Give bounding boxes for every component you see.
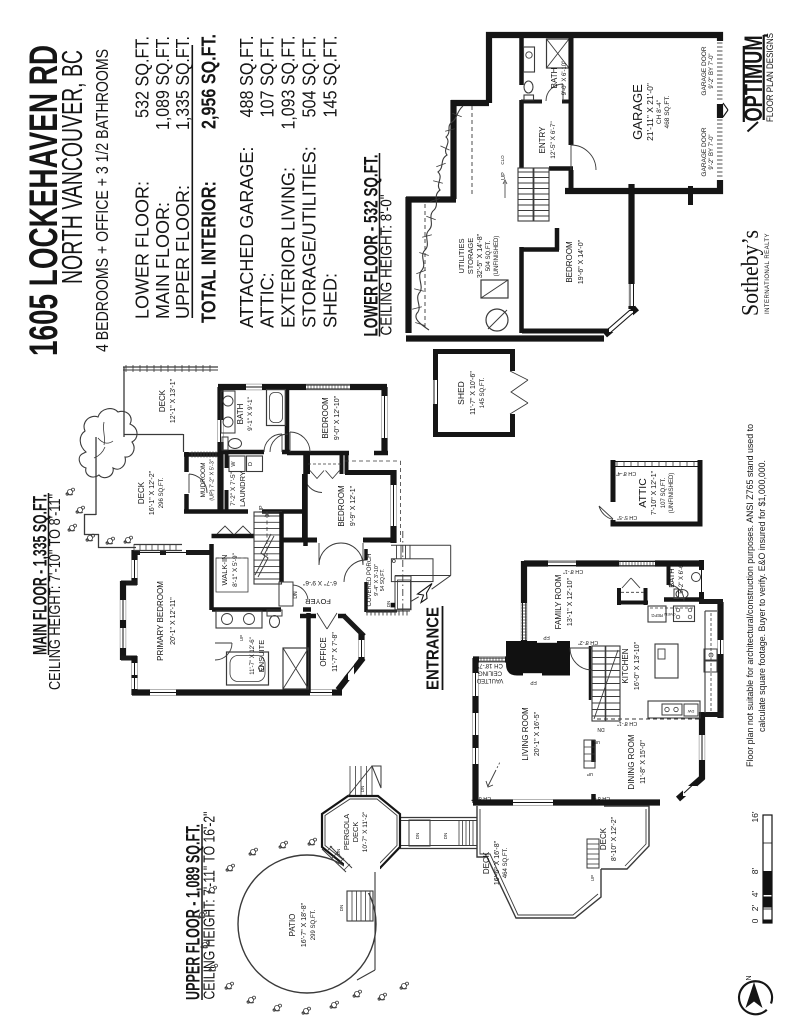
svg-text:EXTERIOR LIVING:: EXTERIOR LIVING: [279, 167, 299, 328]
svg-text:LIVING ROOM: LIVING ROOM [521, 707, 530, 761]
svg-text:D: D [248, 462, 254, 466]
svg-text:GARAGE DOOR: GARAGE DOOR [701, 46, 708, 95]
svg-text:32'-5" X 14'-8": 32'-5" X 14'-8" [477, 233, 484, 278]
svg-text:1,089 SQ.FT.: 1,089 SQ.FT. [153, 36, 173, 130]
svg-text:8'-1" X 5'-9": 8'-1" X 5'-9" [232, 552, 239, 587]
svg-text:9'-2" BY 7'-0": 9'-2" BY 7'-0" [709, 53, 715, 88]
svg-text:MUDROOM: MUDROOM [200, 462, 207, 497]
svg-text:488 SQ.FT.: 488 SQ.FT. [237, 36, 257, 118]
svg-text:SHED:: SHED: [321, 273, 341, 328]
svg-text:BEDROOM: BEDROOM [321, 397, 330, 439]
svg-text:(UNFINISHED): (UNFINISHED) [669, 473, 675, 514]
svg-text:CH 8'-1": CH 8'-1" [590, 795, 610, 801]
svg-text:54 SQ.FT.: 54 SQ.FT. [380, 569, 386, 592]
svg-text:STORAGE: STORAGE [466, 238, 475, 275]
svg-text:FAMILY ROOM: FAMILY ROOM [554, 574, 563, 629]
svg-text:VAULTED: VAULTED [476, 677, 503, 683]
svg-text:OVEN: OVEN [664, 612, 675, 617]
svg-text:11'-7" X 12'-6": 11'-7" X 12'-6" [250, 637, 256, 674]
svg-text:ENSUITE: ENSUITE [257, 640, 266, 673]
svg-text:DECK: DECK [482, 851, 491, 874]
svg-text:DECK: DECK [158, 389, 167, 412]
svg-text:UP: UP [239, 635, 244, 641]
svg-text:19'-6" X 14'-0": 19'-6" X 14'-0" [578, 239, 585, 284]
svg-text:DN: DN [415, 833, 420, 840]
svg-text:BATH: BATH [667, 568, 676, 587]
svg-text:PATIO: PATIO [288, 914, 297, 937]
svg-text:DINING ROOM: DINING ROOM [627, 734, 636, 789]
svg-text:PERGOLA: PERGOLA [342, 814, 351, 850]
svg-text:FOYER: FOYER [305, 597, 331, 606]
svg-text:2,956 SQ.FT.: 2,956 SQ.FT. [199, 34, 221, 129]
svg-text:10'-7" X 11'-2": 10'-7" X 11'-2" [362, 811, 369, 852]
svg-text:UP: UP [594, 740, 600, 745]
svg-text:LAUNDRY: LAUNDRY [238, 471, 247, 507]
svg-text:21'-11" X 21'-0": 21'-11" X 21'-0" [645, 83, 655, 141]
svg-text:532 SQ.FT.: 532 SQ.FT. [133, 36, 153, 118]
svg-text:REFG: REFG [651, 613, 663, 618]
svg-text:20'-1" X 12'-11": 20'-1" X 12'-11" [170, 597, 177, 645]
svg-text:MAIN FLOOR:: MAIN FLOOR: [153, 202, 173, 319]
svg-text:16'-6" X 16'-8": 16'-6" X 16'-8" [494, 840, 501, 885]
svg-text:2': 2' [750, 904, 760, 911]
svg-text:Floor plan not suitable for ar: Floor plan not suitable for architectura… [745, 424, 756, 767]
svg-text:UTILITIES: UTILITIES [457, 238, 466, 273]
svg-text:12'-1" X 13'-1": 12'-1" X 13'-1" [170, 378, 177, 423]
svg-text:CH 8'-4": CH 8'-4" [616, 470, 636, 476]
svg-text:CEILING HEIGHT: 8'-0": CEILING HEIGHT: 8'-0" [379, 195, 396, 336]
svg-text:1,093 SQ.FT.: 1,093 SQ.FT. [279, 36, 299, 130]
svg-text:FP: FP [543, 634, 550, 640]
svg-text:13'-1" X 12'-10": 13'-1" X 12'-10" [567, 577, 574, 626]
svg-text:DW: DW [687, 709, 694, 714]
svg-text:GARAGE DOOR: GARAGE DOOR [701, 127, 708, 176]
svg-text:16'-7" X 18'-8": 16'-7" X 18'-8" [301, 902, 308, 947]
svg-text:0: 0 [750, 918, 760, 923]
svg-text:ENTRANCE: ENTRANCE [423, 607, 443, 690]
svg-text:ENTRY: ENTRY [538, 126, 547, 154]
svg-text:CH 8'-1": CH 8'-1" [471, 795, 491, 801]
svg-text:DECK: DECK [599, 827, 608, 850]
svg-text:STORAGE/UTILITIES:: STORAGE/UTILITIES: [300, 146, 320, 328]
svg-text:5'-2" X 6'-6": 5'-2" X 6'-6" [679, 562, 685, 593]
svg-text:GARAGE: GARAGE [630, 84, 645, 140]
svg-text:Sotheby’s: Sotheby’s [738, 230, 764, 316]
svg-text:ATTIC:: ATTIC: [258, 272, 278, 328]
svg-text:calculate square footage. Buye: calculate square footage. Buyer to verif… [757, 460, 768, 732]
svg-text:BATH: BATH [550, 67, 559, 88]
svg-text:UP: UP [587, 772, 593, 777]
svg-text:CH 8'-1": CH 8'-1" [563, 568, 583, 574]
svg-text:9'-9" X 12'-1": 9'-9" X 12'-1" [350, 485, 357, 526]
svg-text:DN: DN [597, 726, 605, 732]
svg-text:504 SQ.FT.: 504 SQ.FT. [486, 241, 492, 272]
svg-text:CLO: CLO [500, 155, 505, 165]
svg-text:CH 8'-4": CH 8'-4" [656, 99, 663, 124]
svg-text:PRIMARY BEDROOM: PRIMARY BEDROOM [156, 581, 165, 661]
svg-text:ATTIC: ATTIC [637, 478, 649, 508]
svg-text:ATTACHED GARAGE:: ATTACHED GARAGE: [237, 147, 257, 328]
svg-text:4': 4' [750, 890, 760, 897]
svg-text:CH 5'-5": CH 5'-5" [617, 514, 637, 520]
svg-text:299 SQ.FT.: 299 SQ.FT. [311, 910, 317, 941]
svg-text:INTERNATIONAL REALTY: INTERNATIONAL REALTY [764, 233, 771, 314]
svg-text:TOTAL INTERIOR:: TOTAL INTERIOR: [199, 181, 221, 323]
svg-text:7'-2" X 7'-5": 7'-2" X 7'-5" [230, 471, 237, 506]
svg-text:11'-8" X 15'-0": 11'-8" X 15'-0" [640, 740, 647, 784]
svg-text:16'-1" X 12'-2": 16'-1" X 12'-2" [149, 470, 156, 515]
svg-text:DECK: DECK [351, 822, 360, 843]
svg-text:8': 8' [750, 867, 760, 874]
svg-text:107 SQ.FT.: 107 SQ.FT. [661, 478, 667, 509]
svg-text:20'-1" X 16'-5": 20'-1" X 16'-5" [534, 711, 541, 756]
svg-text:6'-7" X 9'-6": 6'-7" X 9'-6" [302, 579, 337, 586]
svg-text:12'-5" X 6'-7": 12'-5" X 6'-7" [550, 121, 557, 159]
svg-text:11'-7" X 10'-6": 11'-7" X 10'-6" [470, 371, 477, 415]
svg-text:UP: UP [259, 505, 265, 513]
svg-text:11'-7" X 7'-8": 11'-7" X 7'-8" [332, 632, 339, 672]
svg-text:N: N [746, 975, 753, 980]
svg-text:16'-0" X 13'-10": 16'-0" X 13'-10" [634, 641, 641, 690]
svg-text:CH 18'-7": CH 18'-7" [477, 662, 503, 668]
svg-text:WALK-IN: WALK-IN [220, 555, 229, 586]
svg-text:CEILING HEIGHT: 7'-10" TO 8'-1: CEILING HEIGHT: 7'-10" TO 8'-11" [47, 494, 64, 690]
svg-text:DECK: DECK [137, 481, 146, 504]
svg-text:UPPER FLOOR:: UPPER FLOOR: [173, 185, 193, 319]
svg-text:DN: DN [360, 786, 365, 793]
svg-text:CH 8'-2": CH 8'-2" [578, 639, 598, 645]
svg-text:(UP) 7'-2" X 5'-3": (UP) 7'-2" X 5'-3" [210, 459, 216, 501]
svg-text:NORTH VANCOUVER, BC: NORTH VANCOUVER, BC [57, 50, 89, 284]
svg-text:145 SQ.FT.: 145 SQ.FT. [321, 36, 341, 118]
svg-text:OFFICE: OFFICE [319, 637, 328, 666]
svg-text:9'-0" X 6'-10": 9'-0" X 6'-10" [562, 61, 568, 96]
svg-text:DN: DN [293, 591, 299, 599]
svg-text:464 SQ.FT.: 464 SQ.FT. [503, 848, 509, 879]
svg-text:BEDROOM: BEDROOM [565, 241, 574, 283]
svg-text:107 SQ.FT.: 107 SQ.FT. [258, 36, 278, 118]
svg-text:UP: UP [590, 875, 595, 881]
svg-text:4 BEDROOMS + OFFICE + 3 1/2 BA: 4 BEDROOMS + OFFICE + 3 1/2 BATHROOMS [92, 49, 112, 352]
svg-text:9'-2" BY 7'-0": 9'-2" BY 7'-0" [709, 134, 715, 169]
svg-text:CEILING: CEILING [478, 670, 502, 676]
svg-text:DN: DN [336, 849, 341, 856]
svg-text:LOWER FLOOR:: LOWER FLOOR: [133, 181, 153, 319]
svg-text:9'-1" X 9'-1": 9'-1" X 9'-1" [247, 396, 254, 431]
svg-text:468 SQ.FT.: 468 SQ.FT. [664, 95, 671, 128]
svg-text:KITCHEN: KITCHEN [621, 648, 630, 683]
svg-text:145 SQ.FT.: 145 SQ.FT. [480, 378, 486, 409]
svg-text:BATH: BATH [236, 403, 245, 424]
svg-text:(UNFINISHED): (UNFINISHED) [494, 236, 500, 277]
svg-text:1,335 SQ.FT.: 1,335 SQ.FT. [173, 36, 193, 130]
svg-text:DN: DN [386, 601, 391, 608]
svg-text:7'-10" X 12'-1": 7'-10" X 12'-1" [651, 470, 658, 515]
svg-text:UP: UP [501, 172, 507, 180]
svg-text:BEDROOM: BEDROOM [337, 485, 346, 527]
svg-text:DN: DN [339, 905, 344, 912]
svg-text:COVERED PORCH: COVERED PORCH [367, 553, 373, 606]
svg-text:SHED: SHED [456, 381, 466, 405]
svg-text:FP: FP [530, 679, 537, 685]
svg-text:W: W [231, 461, 237, 467]
svg-text:8'-10" X 12'-2": 8'-10" X 12'-2" [611, 816, 618, 861]
svg-text:9'-0" X 12'-10": 9'-0" X 12'-10" [334, 395, 341, 440]
svg-text:504 SQ.FT.: 504 SQ.FT. [300, 36, 320, 118]
svg-text:16': 16' [750, 811, 760, 822]
svg-text:DN: DN [443, 833, 448, 840]
svg-text:FLOOR PLAN DESIGNS: FLOOR PLAN DESIGNS [765, 33, 776, 122]
svg-text:296 SQ.FT.: 296 SQ.FT. [159, 478, 165, 509]
